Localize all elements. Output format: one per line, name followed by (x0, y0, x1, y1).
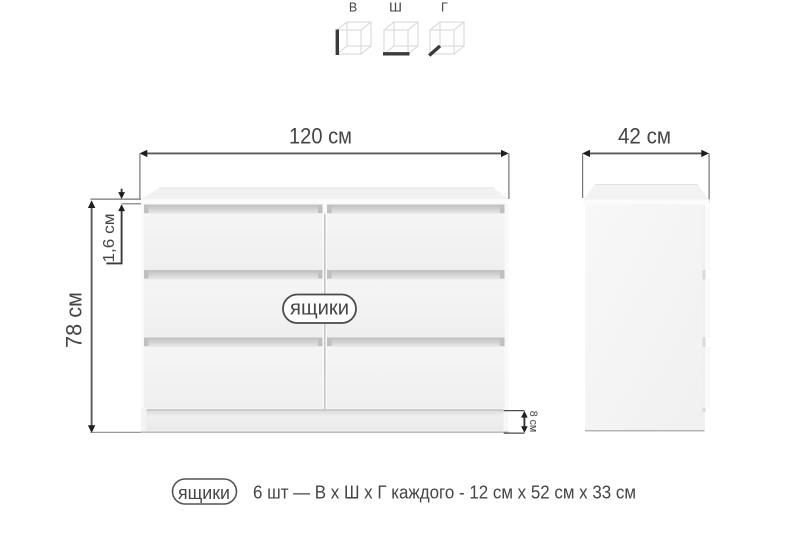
svg-text:8 см: 8 см (527, 411, 539, 433)
svg-text:120 см: 120 см (289, 124, 352, 149)
svg-text:42 см: 42 см (618, 124, 671, 149)
svg-text:6 шт — В х Ш х Г каждого - 12: 6 шт — В х Ш х Г каждого - 12 см х 52 см… (253, 483, 636, 503)
svg-text:78 см: 78 см (62, 292, 87, 348)
svg-text:Ш: Ш (389, 0, 402, 15)
svg-text:В: В (349, 1, 357, 15)
svg-text:ящики: ящики (178, 482, 230, 503)
svg-text:1,6 см: 1,6 см (101, 214, 118, 263)
svg-text:Г: Г (441, 1, 448, 15)
svg-text:ящики: ящики (290, 298, 349, 320)
